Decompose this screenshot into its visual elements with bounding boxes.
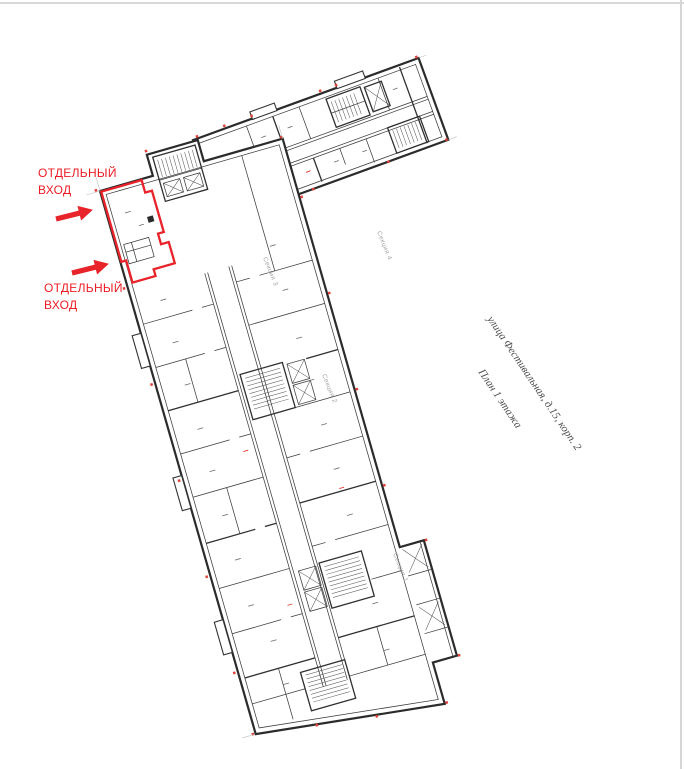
entrance-arrow-2: [70, 257, 111, 281]
entrance-arrow-1: [54, 203, 95, 227]
entrance-label-2-line1: ОТДЕЛЬНЫЙ: [44, 280, 123, 295]
page-border-top: [0, 2, 684, 4]
drawing-title-address: улица Фестивальная, д.15, корп. 2: [484, 313, 584, 453]
entrance-label-2-line2: ВХОД: [44, 298, 77, 312]
floor-plan-page: ОТДЕЛЬНЫЙ ВХОД ОТДЕЛЬНЫЙ ВХОД Секция 1 С…: [0, 0, 684, 769]
entrance-label-1-line2: ВХОД: [38, 183, 71, 197]
floor-plan-canvas: ОТДЕЛЬНЫЙ ВХОД ОТДЕЛЬНЫЙ ВХОД Секция 1 С…: [0, 0, 684, 769]
drawing-title-plan: План 1 этажа: [475, 366, 524, 431]
entrance-label-1-line1: ОТДЕЛЬНЫЙ: [38, 165, 117, 180]
entrance-label-2: ОТДЕЛЬНЫЙ ВХОД: [44, 280, 123, 312]
wing-main: [79, 105, 472, 761]
wing-main-outline: [94, 111, 469, 757]
drawing-title: улица Фестивальная, д.15, корп. 2 План 1…: [453, 313, 584, 474]
section-label-4: Секция 4: [375, 230, 393, 261]
page-border-right: [680, 0, 682, 769]
